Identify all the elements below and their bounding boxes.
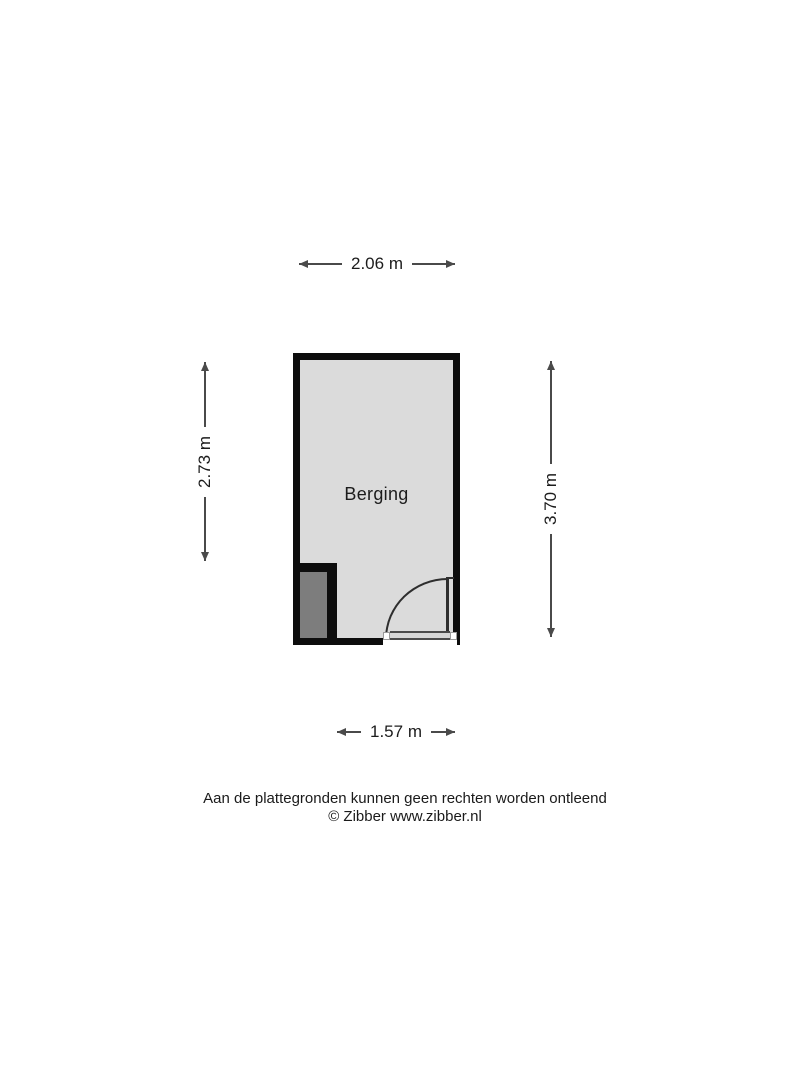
arrow-up-icon	[547, 361, 555, 370]
arrow-right-icon	[446, 728, 455, 736]
arrow-left-icon	[337, 728, 346, 736]
dimension-right: 3.70 m	[542, 361, 560, 637]
dimension-label-right: 3.70 m	[541, 464, 561, 534]
arrow-down-icon	[201, 552, 209, 561]
dimension-left: 2.73 m	[196, 362, 214, 561]
arrow-right-icon	[446, 260, 455, 268]
footer: Aan de plattegronden kunnen geen rechten…	[0, 790, 810, 825]
dimension-label-top: 2.06 m	[342, 254, 412, 274]
door-jamb-right	[450, 632, 457, 640]
shaft-block	[293, 563, 337, 645]
door-threshold	[390, 631, 450, 640]
dimension-label-bottom: 1.57 m	[361, 722, 431, 742]
arrow-left-icon	[299, 260, 308, 268]
arrow-up-icon	[201, 362, 209, 371]
dimension-bottom: 1.57 m	[337, 723, 455, 741]
door-jamb-left	[383, 632, 390, 640]
dimension-top: 2.06 m	[299, 255, 455, 273]
arrow-down-icon	[547, 628, 555, 637]
footer-credit: © Zibber www.zibber.nl	[0, 808, 810, 826]
shaft-fill	[300, 572, 327, 638]
footer-disclaimer: Aan de plattegronden kunnen geen rechten…	[0, 790, 810, 808]
floorplan-canvas: 2.06 m 2.73 m 3.70 m Berging 1.57 m	[0, 0, 810, 1080]
dimension-label-left: 2.73 m	[195, 427, 215, 497]
door-frame-tick	[446, 577, 454, 579]
room-label: Berging	[300, 484, 453, 505]
door-leaf	[446, 578, 449, 634]
door-swing-arc	[385, 578, 448, 639]
room-berging: Berging	[293, 353, 460, 645]
